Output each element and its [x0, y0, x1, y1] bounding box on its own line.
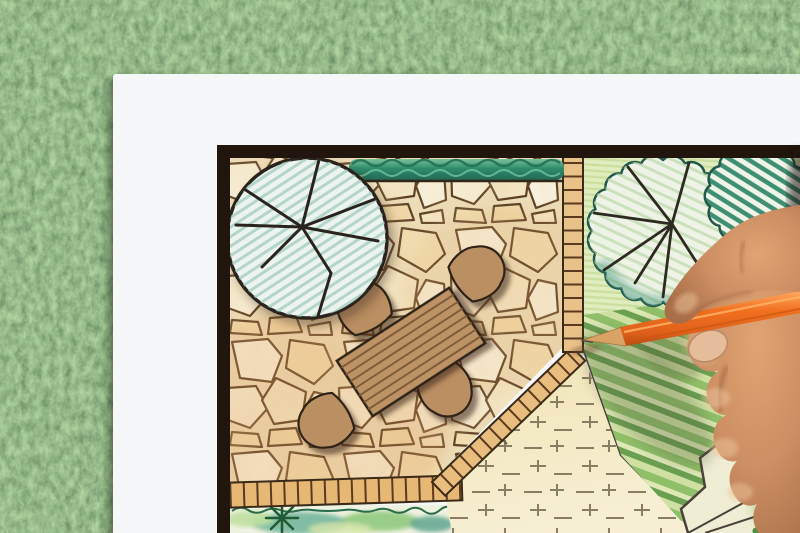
- boxwood-hedge: [349, 159, 564, 181]
- tile-border-vertical: [563, 157, 583, 352]
- knuckle-highlight-1: [702, 388, 730, 408]
- knuckle-highlight-2: [710, 438, 738, 458]
- knuckle-highlight-3: [727, 483, 753, 501]
- garden-plan-photo: [0, 0, 800, 533]
- bed-teal-blob-2: [410, 516, 454, 532]
- photo-canvas: [0, 0, 800, 533]
